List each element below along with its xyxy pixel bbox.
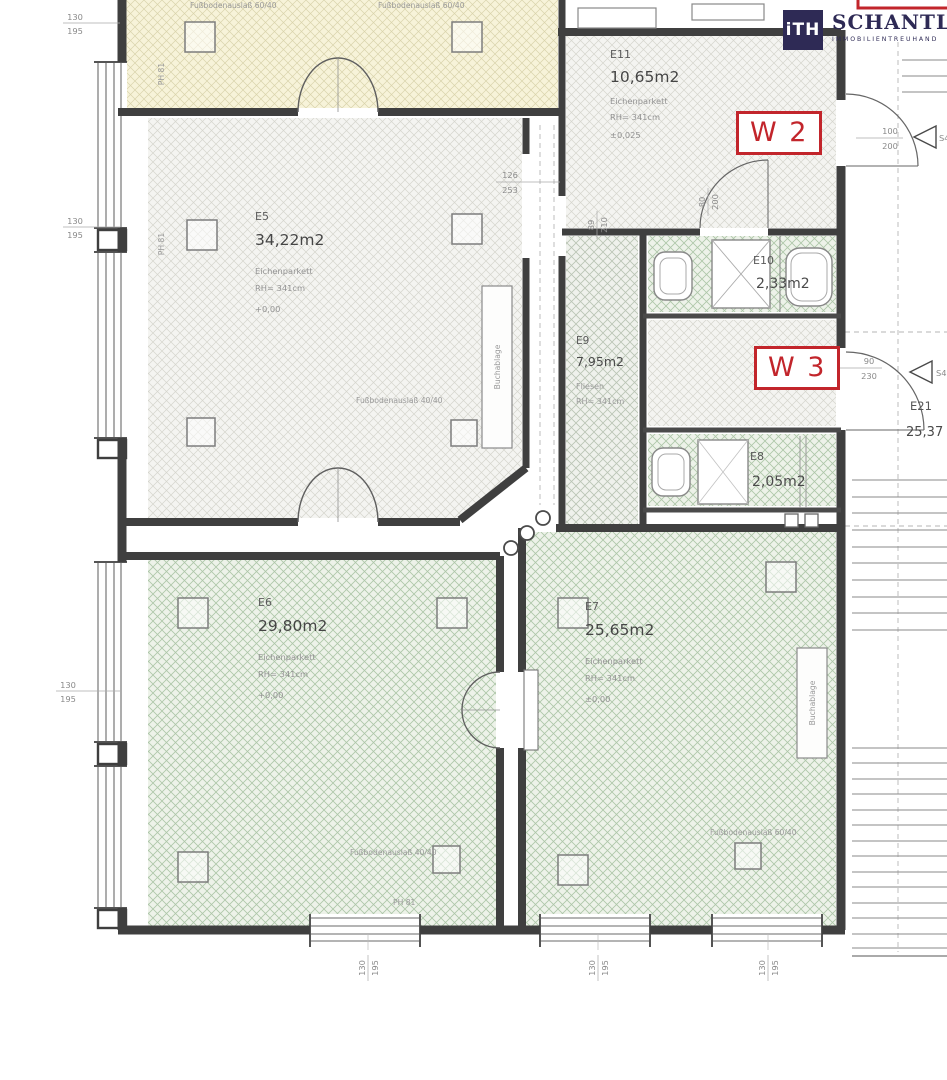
- room-area: 7,95m2: [576, 354, 624, 369]
- stair-treads-top: [902, 60, 947, 92]
- dim-width: 130: [357, 960, 367, 976]
- room-id: E10: [753, 254, 774, 267]
- logo-ith-mark: iTH: [783, 10, 823, 50]
- floor-outlet-icon: [558, 855, 588, 885]
- room-height: RH= 341cm: [255, 283, 305, 293]
- dim-window-left-1: 130 195: [63, 12, 120, 36]
- shower-icon: [712, 240, 770, 308]
- dim-width: 90: [864, 356, 875, 366]
- floor-outlet-icon: [452, 214, 482, 244]
- shelf-label: Buchablage: [808, 680, 817, 725]
- dim-height: 195: [60, 694, 76, 704]
- window-icon: [540, 914, 650, 947]
- floor-outlet-icon: [178, 852, 208, 882]
- column-icon: [536, 511, 550, 525]
- room-id: E9: [576, 335, 589, 347]
- logo-subtitle: IMMOBILIENTREUHAND: [832, 36, 947, 43]
- wall-note: PH 81: [157, 63, 166, 86]
- logo-text: SCHANTL IMMOBILIENTREUHAND: [832, 10, 947, 43]
- bottom-windows: [310, 914, 822, 947]
- dim-width: 89: [586, 220, 596, 231]
- window-icon: [94, 62, 127, 228]
- floor-outlet-icon: [558, 598, 588, 628]
- room-id: E11: [610, 48, 631, 61]
- floor-outlet-icon: [178, 598, 208, 628]
- floor-outlet-icon: [735, 843, 761, 869]
- column-icon: [520, 526, 534, 540]
- dim-width: 130: [757, 960, 767, 976]
- wall-note: PH 81: [393, 898, 416, 907]
- dim-window-bottom-1: 130 195: [357, 955, 380, 981]
- room-top-fill: [126, 0, 558, 108]
- shelf-e7: Buchablage: [797, 648, 827, 758]
- floor-outlet-icon: [187, 220, 217, 250]
- dim-width: 80: [697, 197, 707, 208]
- room-e21-label: E21 25,37: [906, 399, 943, 440]
- unit-badge-w2: W 2: [736, 111, 822, 155]
- dim-height: 253: [502, 185, 518, 195]
- room-e5-fill: [148, 118, 522, 518]
- stair-treads-mid: [852, 480, 947, 630]
- logo-mark-text: iTH: [786, 20, 821, 40]
- dim-window-bottom-3: 130 195: [757, 955, 780, 981]
- shelf-e5: Buchablage: [482, 286, 512, 448]
- floor-outlet-note: Fußbodenauslaß 60/40: [710, 828, 797, 837]
- floor-outlet-note: Fußbodenauslaß 40/40: [350, 848, 437, 857]
- dim-width: 100: [882, 126, 898, 136]
- unit-badge-w3: W 3: [754, 346, 840, 390]
- room-e9-fill: [566, 236, 638, 524]
- double-door-arc-icon: [462, 670, 538, 750]
- floor-outlet-note: Fußbodenauslaß 40/40: [356, 396, 443, 405]
- window-icon: [712, 914, 822, 947]
- staircase-e21: [852, 60, 947, 956]
- room-height: RH= 341cm: [258, 669, 308, 679]
- shaft-box-icon: [578, 8, 656, 28]
- logo: iTH SCHANTL IMMOBILIENTREUHAND: [783, 10, 947, 50]
- window-icon: [310, 914, 420, 947]
- floor-outlet-icon: [451, 420, 477, 446]
- dim-height: 200: [882, 141, 898, 151]
- floor-outlet-note: Fußbodenauslaß 60/40: [378, 1, 465, 10]
- room-id: E6: [258, 596, 272, 609]
- floor-outlet-icon: [437, 598, 467, 628]
- door-direction-triangle-icon: [914, 126, 936, 148]
- shaft-box-icon: [805, 514, 818, 527]
- dim-height: 210: [599, 217, 609, 233]
- dim-door-90-230: 90 230: [840, 356, 882, 381]
- stair-treads-bottom: [852, 748, 947, 948]
- dim-width: 130: [67, 12, 83, 22]
- dim-height: 195: [67, 26, 83, 36]
- room-id: E8: [750, 450, 764, 463]
- logo-name: SCHANTL: [832, 10, 947, 34]
- cropped-red-badge-fragment: [858, 0, 947, 8]
- floor-outlet-icon: [187, 418, 215, 446]
- room-area: 25,37: [906, 425, 943, 440]
- dim-height: 195: [67, 230, 83, 240]
- floor-outlet-icon: [452, 22, 482, 52]
- window-icon: [94, 766, 127, 908]
- room-area: 34,22m2: [255, 231, 324, 249]
- floor-outlet-icon: [433, 846, 460, 873]
- shower-icon: [698, 440, 748, 504]
- dim-height: 195: [600, 960, 610, 976]
- room-height: RH= 341cm: [576, 397, 624, 406]
- floor-outlet-note: Fußbodenauslaß 60/40: [190, 1, 277, 10]
- floor-outlet-icon: [766, 562, 796, 592]
- room-level: ±0,025: [610, 130, 641, 140]
- dim-door-100-200: 100 200: [856, 126, 903, 151]
- shaft-box-icon: [692, 4, 764, 20]
- dim-height: 230: [861, 371, 877, 381]
- shaft-box-icon: [785, 514, 798, 527]
- dim-width: 130: [587, 960, 597, 976]
- window-icon: [94, 252, 127, 438]
- dim-window-bottom-2: 130 195: [587, 955, 610, 981]
- floor-outlet-icon: [185, 22, 215, 52]
- door-arc-icon: [846, 352, 924, 430]
- room-id: E7: [585, 600, 599, 613]
- room-area: 2,05m2: [752, 474, 806, 490]
- door-marker-label: S4: [939, 133, 947, 143]
- floorplan-svg: Buchablage Buchablage E5 34,22m2 Eichenp…: [0, 0, 947, 1080]
- room-height: RH= 341cm: [585, 673, 635, 683]
- room-id: E21: [910, 399, 932, 413]
- room-floor: Fliesen: [576, 382, 604, 391]
- room-level: ±0,00: [585, 694, 610, 704]
- room-area: 25,65m2: [585, 621, 654, 639]
- shelf-label: Buchablage: [493, 344, 502, 389]
- room-floor: Eichenparkett: [610, 96, 668, 106]
- room-level: +0,00: [258, 690, 283, 700]
- room-id: E5: [255, 210, 269, 223]
- door-direction-triangle-icon: [910, 361, 932, 383]
- door-marker-label: S4: [936, 368, 947, 378]
- room-area: 10,65m2: [610, 68, 679, 86]
- room-area: 29,80m2: [258, 617, 327, 635]
- room-floor: Eichenparkett: [255, 266, 313, 276]
- room-floor: Eichenparkett: [585, 656, 643, 666]
- room-area: 2,33m2: [756, 276, 810, 292]
- dim-height: 195: [770, 960, 780, 976]
- room-floor: Eichenparkett: [258, 652, 316, 662]
- dim-height: 200: [710, 194, 720, 210]
- column-icon: [504, 541, 518, 555]
- window-icon: [94, 562, 127, 742]
- dim-width: 130: [67, 216, 83, 226]
- floorplan-canvas: Buchablage Buchablage E5 34,22m2 Eichenp…: [0, 0, 947, 1080]
- dim-height: 195: [370, 960, 380, 976]
- wall-note: PH 81: [157, 233, 166, 256]
- dim-width: 126: [502, 170, 518, 180]
- room-level: +0,00: [255, 304, 280, 314]
- room-height: RH= 341cm: [610, 112, 660, 122]
- dim-width: 130: [60, 680, 76, 690]
